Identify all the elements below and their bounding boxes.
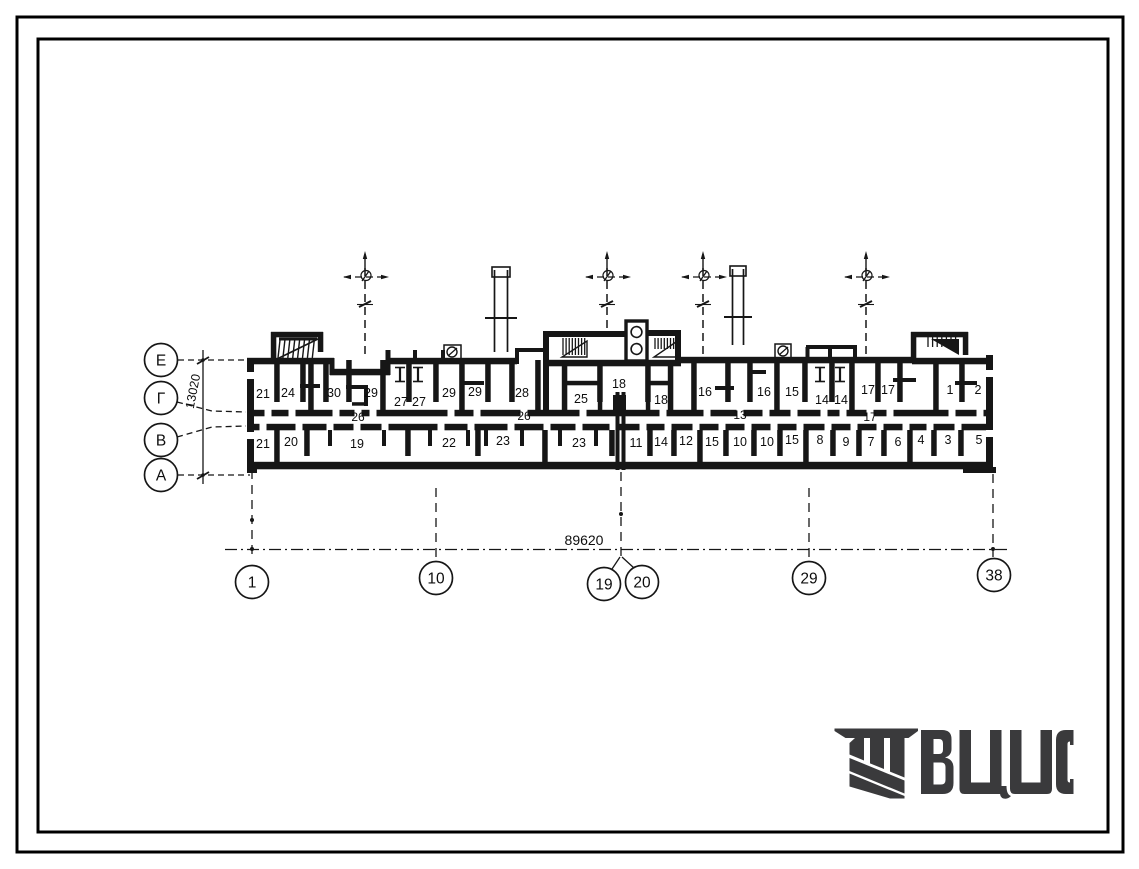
svg-text:21: 21 (256, 437, 270, 451)
svg-text:14: 14 (815, 393, 829, 407)
svg-text:3: 3 (945, 433, 952, 447)
svg-text:38: 38 (985, 568, 1002, 585)
svg-text:В: В (156, 433, 166, 450)
svg-text:29: 29 (800, 571, 817, 588)
svg-text:12: 12 (679, 434, 693, 448)
svg-text:14: 14 (654, 435, 668, 449)
svg-text:18: 18 (612, 377, 626, 391)
svg-text:19: 19 (350, 437, 364, 451)
svg-text:15: 15 (785, 385, 799, 399)
svg-text:19: 19 (595, 577, 612, 594)
svg-text:15: 15 (785, 433, 799, 447)
svg-text:16: 16 (698, 385, 712, 399)
svg-text:17: 17 (861, 383, 875, 397)
svg-text:18: 18 (654, 393, 668, 407)
svg-text:17: 17 (863, 410, 877, 424)
svg-text:20: 20 (633, 575, 651, 592)
svg-text:89620: 89620 (565, 532, 604, 548)
svg-text:10: 10 (427, 571, 445, 588)
svg-text:29: 29 (468, 385, 482, 399)
svg-text:26: 26 (351, 410, 365, 424)
svg-text:28: 28 (515, 386, 529, 400)
svg-text:29: 29 (364, 386, 378, 400)
svg-text:27: 27 (394, 395, 408, 409)
svg-text:11: 11 (630, 436, 643, 450)
svg-text:27: 27 (412, 395, 426, 409)
svg-text:23: 23 (572, 436, 586, 450)
svg-text:14: 14 (834, 393, 848, 407)
svg-text:10: 10 (760, 435, 774, 449)
svg-text:9: 9 (843, 435, 850, 449)
svg-text:22: 22 (442, 436, 456, 450)
svg-text:26: 26 (517, 409, 531, 423)
svg-text:13: 13 (733, 408, 747, 422)
svg-text:10: 10 (733, 435, 747, 449)
svg-text:7: 7 (868, 435, 875, 449)
svg-text:29: 29 (442, 386, 456, 400)
svg-text:Е: Е (156, 353, 166, 370)
svg-text:Г: Г (157, 391, 166, 408)
svg-text:20: 20 (284, 435, 298, 449)
svg-text:1: 1 (947, 383, 954, 397)
svg-text:16: 16 (757, 385, 771, 399)
svg-text:25: 25 (574, 392, 588, 406)
svg-text:15: 15 (705, 435, 719, 449)
svg-text:4: 4 (918, 433, 925, 447)
svg-text:6: 6 (895, 435, 902, 449)
svg-text:17: 17 (881, 383, 895, 397)
svg-text:21: 21 (256, 387, 270, 401)
svg-text:23: 23 (496, 434, 510, 448)
svg-text:8: 8 (817, 433, 824, 447)
svg-text:А: А (156, 468, 167, 485)
svg-text:2: 2 (975, 383, 982, 397)
svg-text:1: 1 (248, 575, 257, 592)
svg-text:24: 24 (281, 386, 295, 400)
svg-text:5: 5 (976, 433, 983, 447)
svg-text:30: 30 (327, 386, 341, 400)
